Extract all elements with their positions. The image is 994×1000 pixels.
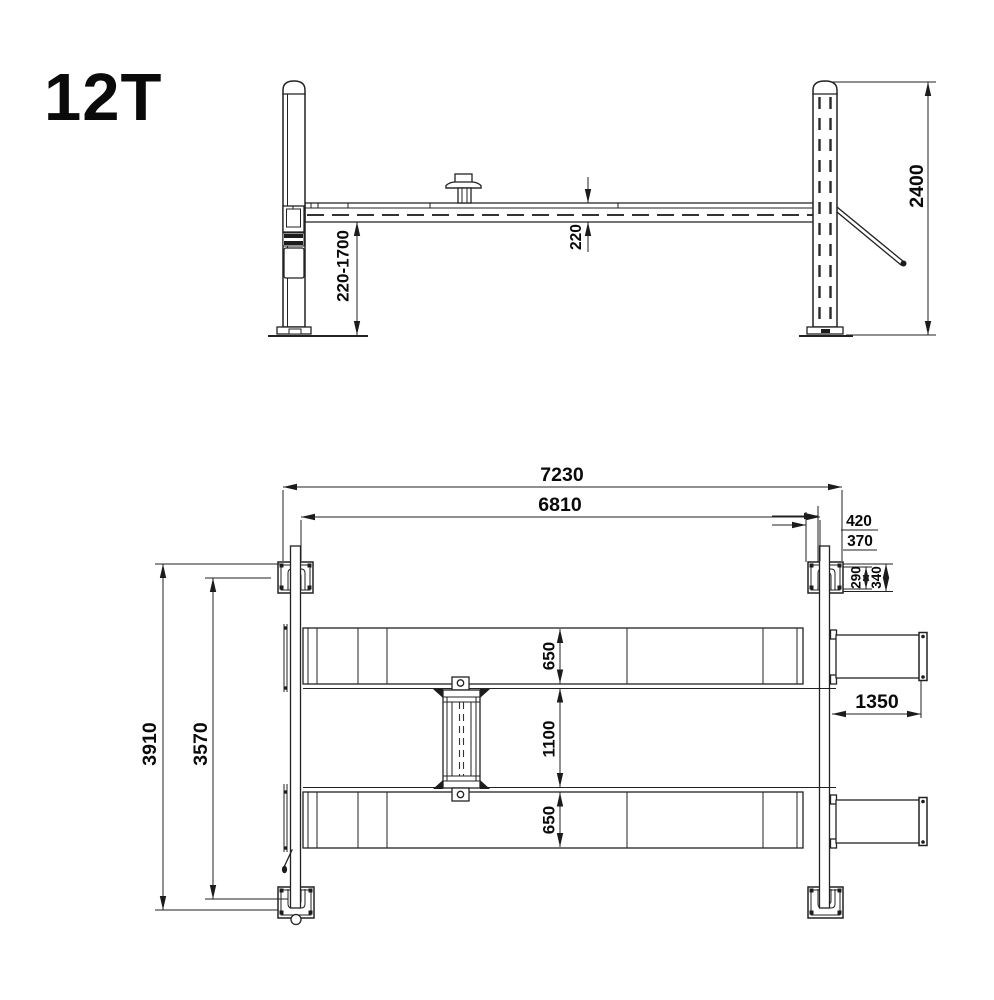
plate-bolt [810, 564, 814, 568]
dim-runway-gap: 1100 [539, 689, 560, 788]
control-box-inner [287, 209, 301, 227]
plate-bolt [309, 911, 313, 915]
lift-drawing-page: 12T [0, 0, 994, 1000]
plate-bolt [280, 586, 284, 590]
right-column-foot [821, 329, 830, 333]
dim-inner-width: 3570 [190, 578, 288, 899]
stop-stem [458, 188, 471, 203]
plate-bolt [838, 889, 842, 893]
ramp-body [836, 635, 921, 678]
pulley-bolt [457, 680, 463, 686]
lift-technical-drawing: 12T [0, 0, 994, 1000]
plate-bolt [810, 889, 814, 893]
plate-bolt [838, 586, 842, 590]
pulley-bolt [457, 791, 463, 797]
capacity-label: 12T [44, 60, 162, 135]
dim-inner-length: 6810 [301, 494, 820, 561]
plate-bolt [309, 889, 313, 893]
bracket-dot [284, 626, 288, 630]
runway-end-bracket-front-left [284, 624, 288, 692]
left-column-body [283, 81, 305, 327]
dim-label: 220 [568, 224, 585, 250]
bracket-dot [284, 790, 288, 794]
bracket-band [284, 234, 303, 238]
plate-bolt [308, 586, 312, 590]
ramp-bolt [921, 840, 925, 844]
bracket-band [284, 241, 303, 245]
dim-label: 7230 [540, 464, 584, 486]
ramp-side [837, 207, 907, 267]
plate-bolt [810, 586, 814, 590]
power-unit-box [283, 206, 304, 278]
clamp-flag [480, 689, 490, 698]
dim-label: 1100 [539, 721, 558, 758]
side-elevation-view: 220-1700 220 2400 [268, 81, 936, 336]
dim-column-height: 2400 [830, 82, 936, 335]
dim-label: 420 [846, 513, 872, 530]
dim-label: 3910 [139, 722, 161, 766]
clamp-flag [433, 689, 443, 698]
clamp-flag [433, 780, 443, 789]
cross-cylinder-assembly [433, 677, 490, 801]
plate-bolt [280, 889, 284, 893]
dim-label: 290 [849, 566, 864, 589]
plate-bolt [838, 564, 842, 568]
runway-side [305, 203, 813, 222]
ramp-bolt [921, 635, 925, 639]
plate-bolt [308, 564, 312, 568]
bracket-dot [284, 686, 288, 690]
plan-view: 7230 6810 420 370 29 [139, 464, 927, 925]
ramp-end-bar [919, 633, 927, 681]
lower-panel [284, 248, 304, 278]
plate-bolt [280, 911, 284, 915]
dim-lift-range: 220-1700 [333, 222, 357, 335]
cylinder-body [443, 690, 480, 788]
ramp-bolt [921, 675, 925, 679]
ramp-end-bar [919, 798, 927, 846]
runway-front-plan [303, 628, 837, 689]
plate-bolt [280, 564, 284, 568]
hydraulic-stop [446, 174, 481, 203]
stop-flange [446, 182, 481, 188]
dim-label: 340 [869, 566, 884, 589]
clamp-flag [480, 780, 490, 789]
dim-ramp-length: 1350 [832, 681, 921, 718]
cable-weight [282, 866, 287, 874]
left-column-foot [289, 329, 301, 334]
dim-label: 6810 [538, 494, 582, 516]
ramp-upper-line [837, 207, 904, 262]
dim-label: 650 [539, 806, 558, 834]
plate-bolt [838, 911, 842, 915]
plate-bolt [810, 911, 814, 915]
dim-label: 2400 [906, 164, 928, 208]
ramp-lower-line [837, 212, 901, 265]
ramp-bolt [921, 800, 925, 804]
crossbeam-right [820, 546, 830, 908]
ramp-end-dot [901, 261, 907, 267]
runway-end-bracket-rear-left [284, 784, 288, 852]
bracket-dot [284, 846, 288, 850]
dim-label: 370 [847, 533, 873, 550]
dim-label: 3570 [190, 722, 212, 766]
ramp-body [836, 800, 921, 843]
runway-rear-plan [303, 788, 837, 849]
dim-label: 650 [539, 642, 558, 670]
dim-label: 1350 [855, 691, 899, 713]
anchor-detail-circle [291, 915, 301, 925]
right-column-body [813, 81, 837, 327]
ramp-plan-rear [836, 798, 927, 846]
ramp-plan-front [836, 633, 927, 681]
crossbeam-left [291, 546, 301, 908]
dim-plate-340: 340 [869, 564, 886, 592]
dim-label: 220-1700 [333, 230, 352, 302]
